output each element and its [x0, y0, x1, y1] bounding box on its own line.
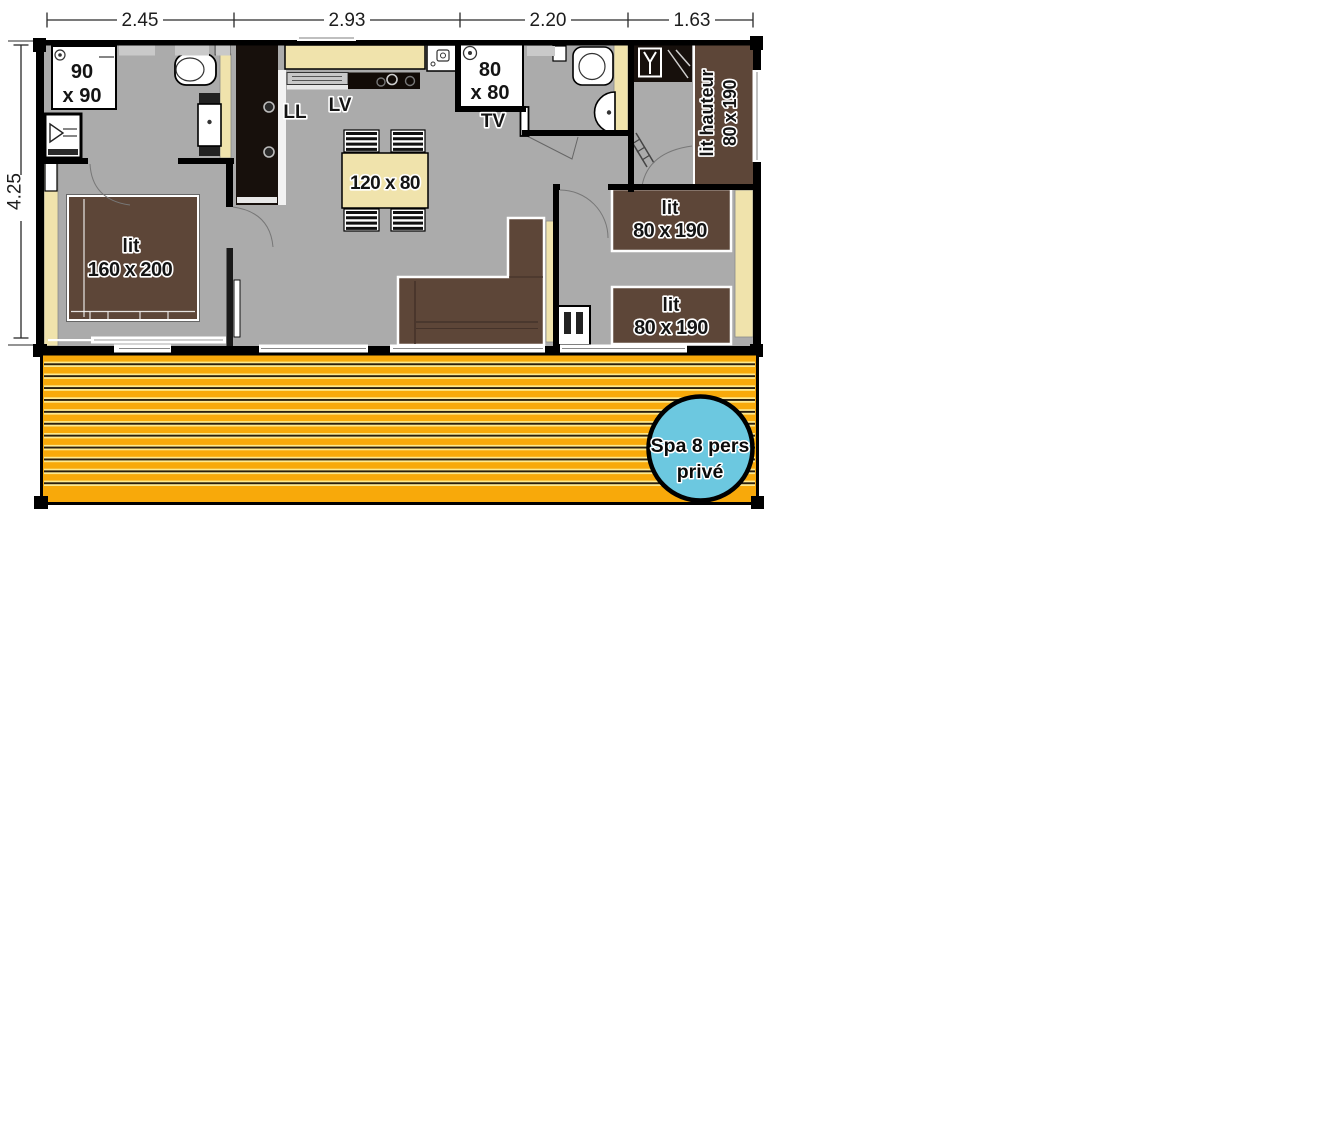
svg-text:80 x 190: 80 x 190: [633, 220, 707, 242]
svg-text:lit: lit: [663, 295, 681, 316]
svg-text:80 x 190: 80 x 190: [634, 317, 708, 339]
svg-text:privé: privé: [677, 461, 724, 483]
svg-text:80: 80: [479, 59, 501, 81]
svg-text:2.93: 2.93: [329, 10, 366, 31]
svg-text:2.20: 2.20: [530, 10, 567, 31]
svg-text:LL: LL: [283, 102, 307, 123]
svg-text:lit: lit: [662, 198, 680, 219]
svg-text:LV: LV: [329, 95, 352, 116]
svg-text:90: 90: [71, 61, 93, 83]
svg-text:4.25: 4.25: [5, 173, 26, 210]
svg-text:Spa 8 pers: Spa 8 pers: [651, 435, 750, 457]
svg-text:x 80: x 80: [471, 82, 510, 104]
svg-text:1.63: 1.63: [674, 10, 711, 31]
svg-text:2.45: 2.45: [122, 10, 159, 31]
svg-text:160 x 200: 160 x 200: [88, 259, 173, 281]
svg-text:lit hauteur: lit hauteur: [697, 69, 717, 156]
svg-text:120 x 80: 120 x 80: [350, 173, 420, 194]
svg-text:lit: lit: [123, 236, 141, 257]
svg-text:80 x 190: 80 x 190: [720, 79, 740, 146]
svg-text:TV: TV: [481, 111, 506, 132]
svg-text:x 90: x 90: [63, 85, 102, 107]
